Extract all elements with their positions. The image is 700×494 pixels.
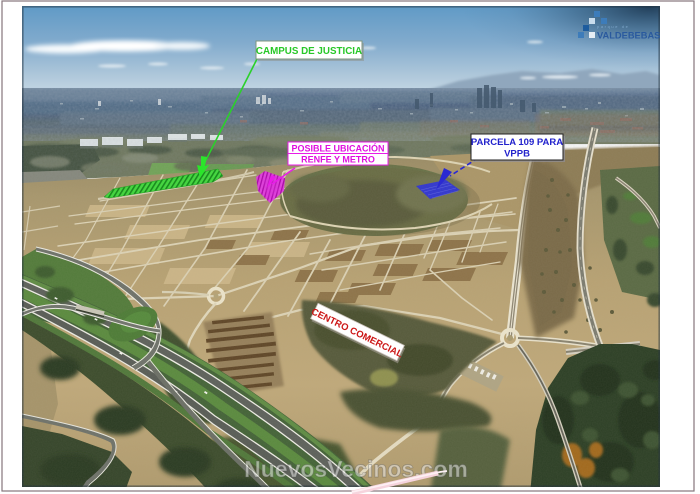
- svg-text:CAMPUS DE JUSTICIA: CAMPUS DE JUSTICIA: [256, 46, 362, 57]
- svg-text:VALDEBEBAS: VALDEBEBAS: [597, 31, 660, 41]
- svg-text:parque de: parque de: [597, 24, 629, 29]
- svg-text:RENFE Y METRO: RENFE Y METRO: [301, 155, 375, 165]
- svg-text:PARCELA 109 PARA: PARCELA 109 PARA: [471, 137, 563, 148]
- svg-text:POSIBLE UBICACIÓN: POSIBLE UBICACIÓN: [291, 143, 384, 154]
- svg-text:NuevosVecinos.com: NuevosVecinos.com: [244, 456, 468, 482]
- svg-text:VPPB: VPPB: [504, 149, 530, 160]
